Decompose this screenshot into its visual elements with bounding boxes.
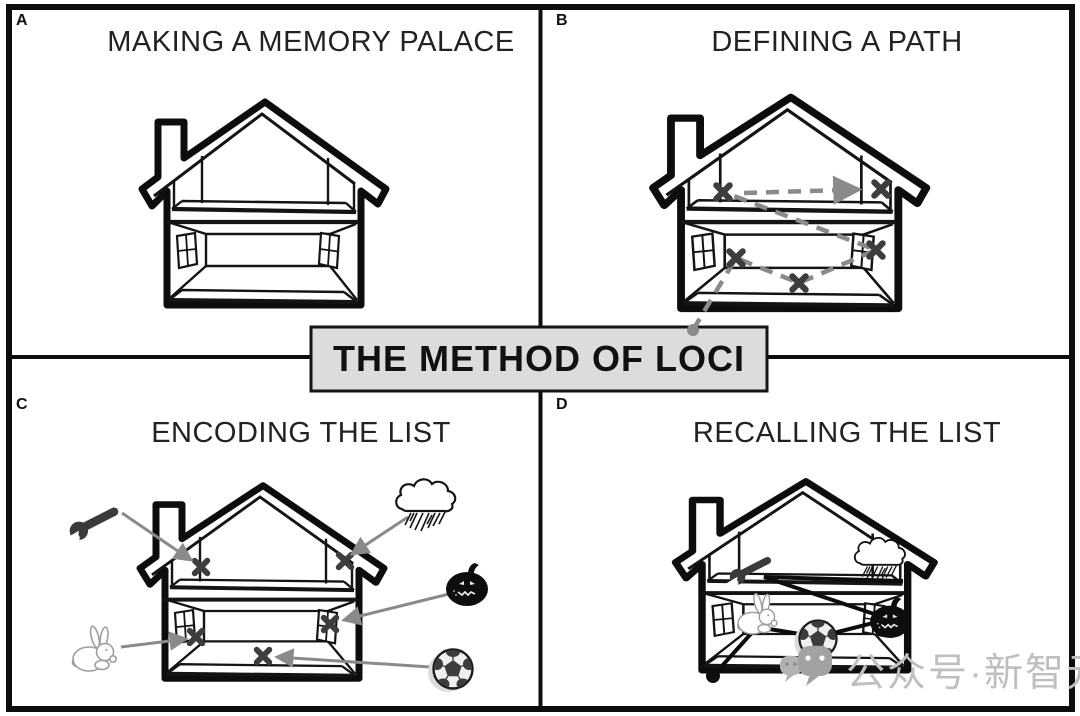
route-start-dot-icon xyxy=(706,669,720,683)
wechat-official-account-icon xyxy=(778,644,836,696)
memory-palace-house-icon xyxy=(142,102,386,305)
method-of-loci-title: THE METHOD OF LOCI xyxy=(310,326,768,392)
rabbit-icon xyxy=(73,625,117,671)
watermark-text: 公众号·新智元 xyxy=(846,642,1080,698)
panel-label-c: C xyxy=(16,396,28,414)
watermark: 公众号·新智元 xyxy=(778,642,1080,698)
panel-title-a: MAKING A MEMORY PALACE xyxy=(10,26,576,59)
panel-title-d: RECALLING THE LIST xyxy=(542,417,1080,450)
storm-cloud-icon xyxy=(396,479,455,531)
memory-palace-house-icon xyxy=(140,486,384,679)
panel-title-c: ENCODING THE LIST xyxy=(10,417,566,450)
method-of-loci-figure: A B C D MAKING A MEMORY PALACE DEFINING … xyxy=(0,0,1080,716)
pumpkin-icon xyxy=(446,563,488,606)
wrench-icon xyxy=(59,504,121,550)
panel-title-b: DEFINING A PATH xyxy=(542,26,1080,59)
panel-label-d: D xyxy=(556,396,568,414)
soccer-ball-icon xyxy=(428,647,475,692)
cloud-arrow-icon xyxy=(352,517,408,554)
